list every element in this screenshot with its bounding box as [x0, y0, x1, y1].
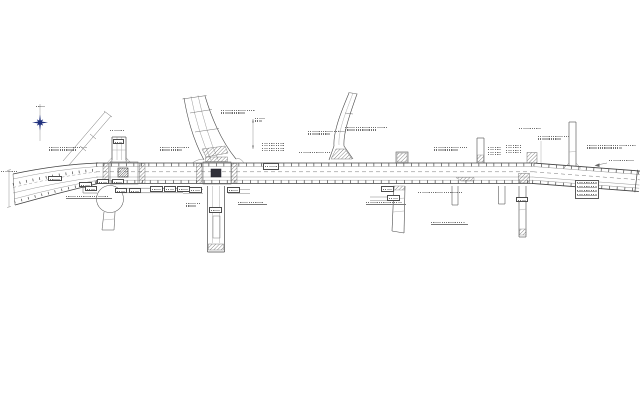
mini-data-table	[262, 143, 284, 152]
dark-center-block	[211, 169, 221, 177]
annotation-smudge	[431, 222, 465, 225]
boxed-label	[129, 188, 141, 193]
north-road-x570	[564, 122, 581, 169]
annotation-smudge	[255, 118, 265, 123]
annotation-smudge	[160, 147, 190, 152]
mini-data-table	[575, 180, 599, 199]
intersection-2	[197, 157, 238, 184]
annotation-smudge	[418, 192, 462, 194]
annotation-smudge	[519, 128, 541, 130]
boxed-label	[115, 188, 127, 193]
annotation-smudge	[66, 196, 108, 199]
boxed-label	[177, 186, 190, 192]
boxed-label	[189, 187, 202, 193]
annotation-smudge	[49, 147, 87, 152]
annotation-smudge	[434, 147, 467, 152]
annotation-smudge	[587, 145, 636, 150]
north-star-icon	[32, 115, 48, 131]
boxed-label	[209, 207, 222, 213]
right-annotation-arrow	[595, 163, 608, 167]
annotation-smudge	[238, 202, 264, 205]
annotation-smudge	[609, 160, 634, 162]
annotation-smudge	[345, 127, 388, 132]
road-plan-drawing	[0, 0, 640, 401]
intersection-1	[103, 162, 145, 184]
boxed-label	[85, 186, 97, 191]
annotation-smudge	[1, 171, 18, 173]
upper-left-diagonal-road	[63, 111, 112, 165]
north-arrow	[32, 104, 48, 141]
boxed-label	[387, 195, 400, 201]
road-plan-canvas	[0, 0, 640, 401]
annotation-smudge	[538, 136, 570, 141]
northwest-diagonal-bundle-intersection-2	[183, 96, 254, 164]
boxed-label	[164, 186, 177, 192]
south-road-at-intersection-2	[183, 186, 250, 252]
annotation-smudge	[221, 110, 255, 115]
annotation-smudge	[366, 202, 402, 205]
annotation-smudge	[299, 152, 331, 154]
boxed-label	[48, 176, 62, 181]
boxed-label	[113, 139, 124, 144]
mini-data-table	[506, 145, 521, 154]
annotation-smudge	[186, 203, 200, 208]
boxed-label	[227, 187, 240, 193]
annotation-smudge	[110, 130, 124, 132]
mini-data-table	[488, 147, 501, 156]
boxed-label	[150, 186, 163, 192]
annotation-smudge	[36, 106, 45, 108]
boxed-label	[263, 163, 279, 170]
annotation-smudge	[308, 131, 339, 136]
boxed-label	[516, 197, 528, 202]
boxed-label	[97, 179, 109, 184]
boxed-label	[112, 179, 124, 184]
boxed-label	[381, 186, 394, 192]
